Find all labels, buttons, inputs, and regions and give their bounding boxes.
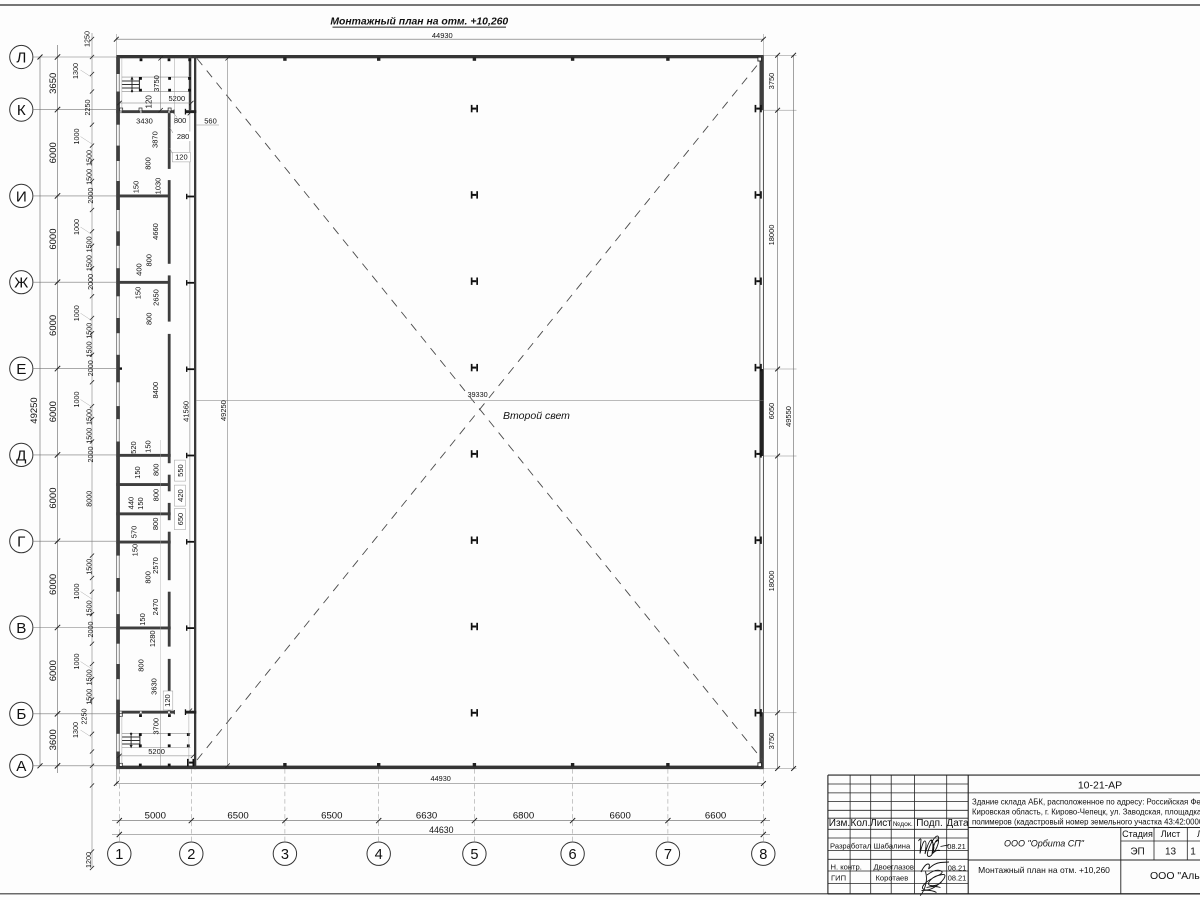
svg-text:1500: 1500 [85,255,94,271]
svg-text:Монтажный план на отм. +10,260: Монтажный план на отм. +10,260 [978,865,1110,875]
svg-text:ООО "Орбита СП": ООО "Орбита СП" [1004,839,1085,849]
svg-text:120: 120 [175,153,188,162]
svg-text:Коротаев: Коротаев [876,873,909,882]
svg-text:Г: Г [17,534,25,551]
svg-text:5200: 5200 [148,747,165,756]
svg-text:1280: 1280 [148,630,157,647]
svg-text:1300: 1300 [71,63,80,79]
svg-text:420: 420 [176,489,185,502]
svg-text:650: 650 [176,513,185,526]
svg-text:6500: 6500 [227,811,248,822]
svg-text:41560: 41560 [181,401,190,422]
svg-text:1500: 1500 [85,169,94,185]
svg-text:3600: 3600 [48,729,59,750]
svg-text:ГИП: ГИП [831,873,846,882]
svg-text:39330: 39330 [467,390,487,399]
svg-text:8400: 8400 [151,382,160,399]
svg-text:6800: 6800 [513,811,534,822]
svg-text:49250: 49250 [29,397,40,423]
svg-text:2: 2 [187,847,195,863]
svg-text:10-21-АР: 10-21-АР [1078,780,1122,792]
svg-text:4660: 4660 [151,223,160,240]
svg-text:150: 150 [132,181,141,194]
svg-text:44930: 44930 [431,774,451,783]
svg-text:2650: 2650 [152,289,161,306]
svg-text:08.21: 08.21 [948,864,967,873]
svg-text:И: И [16,188,27,205]
svg-text:В: В [16,620,26,637]
svg-text:49250: 49250 [219,400,228,421]
svg-text:8000: 8000 [85,491,94,507]
svg-text:150: 150 [144,440,153,453]
svg-text:08.21: 08.21 [947,842,966,851]
svg-text:1500: 1500 [85,341,94,357]
svg-text:1000: 1000 [72,584,81,600]
svg-text:440: 440 [126,497,135,510]
svg-text:4: 4 [375,847,383,863]
svg-text:Подп.: Подп. [916,818,943,829]
svg-text:3750: 3750 [152,75,161,92]
svg-text:7: 7 [664,847,672,863]
svg-text:3650: 3650 [48,73,59,94]
svg-text:1000: 1000 [72,219,81,235]
svg-text:1500: 1500 [85,150,94,166]
svg-text:Кировская область, г. Кирово-Ч: Кировская область, г. Кирово-Чепецк, ул.… [972,807,1200,816]
svg-text:800: 800 [137,659,146,672]
svg-text:1000: 1000 [72,654,81,670]
svg-text:800: 800 [151,518,160,531]
svg-text:3630: 3630 [149,678,158,695]
svg-text:150: 150 [133,466,142,479]
svg-text:400: 400 [134,263,143,276]
svg-text:1500: 1500 [85,559,94,575]
svg-text:120: 120 [163,694,172,707]
svg-text:1500: 1500 [85,428,94,444]
svg-text:6630: 6630 [416,811,437,822]
svg-text:6500: 6500 [321,811,342,822]
svg-text:Ж: Ж [14,275,28,292]
svg-text:Изм.: Изм. [829,818,850,829]
svg-text:120: 120 [145,95,154,109]
svg-text:1500: 1500 [85,409,94,425]
svg-text:6600: 6600 [610,811,631,822]
svg-text:13: 13 [1165,847,1177,858]
svg-text:150: 150 [131,544,140,557]
svg-text:1250: 1250 [83,31,92,47]
svg-text:5: 5 [470,847,478,863]
svg-text:полимеров (кадастровый номер з: полимеров (кадастровый номер земельного … [972,817,1200,826]
svg-text:150: 150 [138,613,147,626]
svg-text:6600: 6600 [705,811,726,822]
svg-text:18000: 18000 [767,571,776,592]
svg-text:Д: Д [16,447,26,464]
svg-text:150: 150 [133,287,142,300]
svg-text:1500: 1500 [85,600,94,616]
svg-text:800: 800 [144,313,153,326]
svg-text:Шабалина: Шабалина [874,841,911,850]
svg-text:Монтажный план на отм. +10,260: Монтажный план на отм. +10,260 [330,17,508,28]
svg-text:560: 560 [204,116,217,125]
svg-text:Б: Б [16,706,26,723]
svg-text:1500: 1500 [85,236,94,252]
svg-text:800: 800 [152,489,161,502]
svg-text:1500: 1500 [85,323,94,339]
svg-text:№док.: №док. [893,821,913,828]
svg-text:6000: 6000 [48,229,59,250]
svg-text:3750: 3750 [767,733,776,750]
svg-text:1500: 1500 [85,669,94,685]
svg-text:800: 800 [174,116,187,125]
svg-text:2000: 2000 [86,274,95,290]
svg-text:6000: 6000 [48,660,59,681]
svg-text:3700: 3700 [151,718,160,735]
svg-text:6000: 6000 [48,574,59,595]
svg-text:800: 800 [144,157,153,170]
svg-text:5000: 5000 [145,811,166,822]
svg-text:Кол.: Кол. [851,818,871,829]
svg-text:6000: 6000 [48,142,59,163]
svg-text:ООО "Альянс: ООО "Альянс [1150,870,1200,882]
svg-text:1: 1 [115,847,123,863]
svg-text:3870: 3870 [151,131,160,148]
svg-text:Е: Е [16,361,26,378]
svg-text:ЭП: ЭП [1130,847,1144,858]
svg-text:1500: 1500 [85,689,94,705]
svg-text:1030: 1030 [154,178,163,195]
svg-text:1300: 1300 [71,722,80,738]
svg-text:800: 800 [152,464,161,477]
svg-text:2000: 2000 [86,360,95,376]
svg-text:Н. контр.: Н. контр. [831,862,862,871]
svg-text:6000: 6000 [48,315,59,336]
svg-text:2250: 2250 [80,709,89,725]
svg-text:49550: 49550 [784,406,793,427]
svg-text:К: К [17,102,26,119]
svg-text:Лист: Лист [1161,829,1181,839]
svg-text:Л: Л [16,49,26,66]
svg-text:2250: 2250 [83,100,92,116]
svg-text:Здание склада АБК, расположенн: Здание склада АБК, расположенное по адре… [972,797,1200,806]
svg-text:Стадия: Стадия [1122,829,1153,839]
svg-text:8: 8 [759,847,767,863]
svg-text:550: 550 [176,464,185,477]
svg-text:1200: 1200 [84,852,93,868]
svg-text:5200: 5200 [168,94,185,103]
svg-text:3: 3 [281,847,289,863]
svg-text:150: 150 [136,497,145,510]
svg-text:280: 280 [177,132,190,141]
svg-text:Двоеглазов: Двоеглазов [874,862,914,871]
svg-text:44630: 44630 [429,825,454,835]
svg-text:1000: 1000 [72,392,81,408]
svg-text:1000: 1000 [72,305,81,321]
svg-text:2000: 2000 [86,188,95,204]
svg-text:6000: 6000 [48,401,59,422]
svg-text:1000: 1000 [72,129,81,145]
svg-text:Лист: Лист [870,818,892,829]
svg-text:08.21: 08.21 [948,874,967,883]
svg-text:800: 800 [144,571,153,584]
svg-text:520: 520 [129,441,138,454]
svg-text:3750: 3750 [767,73,776,90]
svg-text:Разработал: Разработал [830,841,871,850]
svg-text:3430: 3430 [136,117,153,126]
svg-text:Дата: Дата [946,818,969,829]
svg-text:6000: 6000 [48,488,59,509]
svg-text:44930: 44930 [432,31,453,40]
svg-text:Второй свет: Второй свет [503,410,570,422]
svg-text:570: 570 [129,526,138,539]
svg-text:2000: 2000 [86,447,95,463]
svg-text:800: 800 [144,254,153,267]
svg-text:2000: 2000 [86,622,95,638]
svg-text:2470: 2470 [151,599,160,616]
svg-text:1: 1 [1190,847,1196,858]
svg-text:А: А [16,758,27,775]
svg-text:18000: 18000 [767,225,776,246]
svg-text:6050: 6050 [767,403,776,420]
svg-text:6: 6 [569,847,577,863]
